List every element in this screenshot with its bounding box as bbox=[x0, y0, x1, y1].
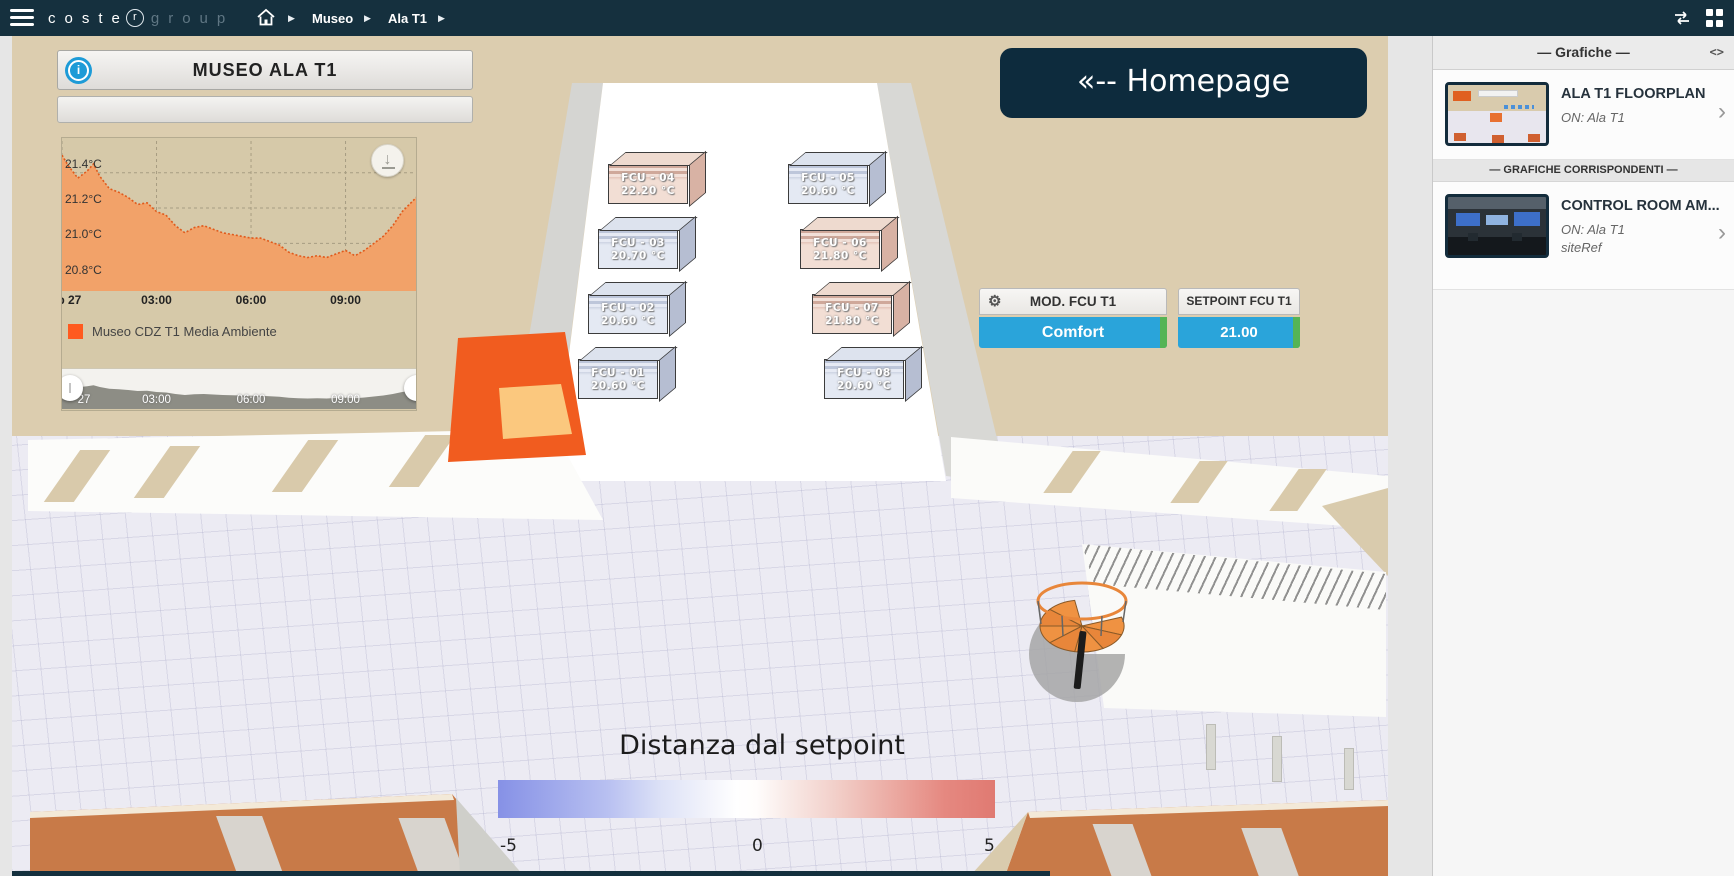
fcu-name: FCU - 04 bbox=[609, 172, 687, 185]
x-tick-label: 09:00 bbox=[330, 293, 361, 307]
chart-y-axis: 21.4°C21.2°C21.0°C20.8°C bbox=[65, 141, 125, 291]
sidebar-item-subtitle: ON: Ala T1 bbox=[1561, 110, 1625, 125]
distance-mid-label: 0 bbox=[752, 836, 763, 856]
logo-text-main: coste bbox=[48, 10, 129, 27]
chart-range-minimap[interactable]: 2703:0006:0009:00 bbox=[62, 368, 417, 408]
fcu-name: FCU - 03 bbox=[599, 237, 677, 250]
setpoint-fcu-widget: SETPOINT FCU T1 21.00 bbox=[1178, 288, 1300, 348]
distance-min-label: -5 bbox=[500, 836, 517, 856]
mod-fcu-widget: ⚙ MOD. FCU T1 Comfort bbox=[979, 288, 1167, 348]
fcu-unit-06[interactable]: FCU - 0621.80 °C bbox=[800, 229, 880, 269]
sidebar-item-ala-t1-floorplan[interactable]: ALA T1 FLOORPLAN ON: Ala T1 › bbox=[1433, 70, 1734, 160]
chevron-right-icon[interactable]: › bbox=[1718, 219, 1726, 247]
legend-series-name: Museo CDZ T1 Media Ambiente bbox=[92, 324, 277, 339]
scene-bottom-edge bbox=[12, 871, 1050, 876]
info-icon[interactable]: i bbox=[65, 57, 92, 84]
chart-x-axis: Sep 2703:0006:0009:00 bbox=[62, 293, 417, 309]
fcu-name: FCU - 02 bbox=[589, 302, 667, 315]
fcu-temp: 20.60 °C bbox=[789, 185, 867, 198]
fcu-temp: 20.60 °C bbox=[825, 380, 903, 393]
fcu-name: FCU - 05 bbox=[789, 172, 867, 185]
fcu-unit-07[interactable]: FCU - 0721.80 °C bbox=[812, 294, 892, 334]
distance-legend-title: Distanza dal setpoint bbox=[572, 730, 952, 761]
spiral-staircase bbox=[1007, 556, 1157, 731]
minimap-tick-label: 06:00 bbox=[237, 394, 266, 406]
home-icon[interactable] bbox=[256, 8, 276, 27]
breadcrumb-ala-t1[interactable]: Ala T1 bbox=[388, 0, 427, 36]
setpoint-fcu-label: SETPOINT FCU T1 bbox=[1186, 294, 1291, 308]
subtitle-bar bbox=[57, 96, 473, 123]
breadcrumb-separator-icon: ▶ bbox=[438, 13, 445, 24]
chart-download-icon[interactable]: ↓ bbox=[371, 144, 404, 177]
breadcrumb-separator-icon: ▶ bbox=[288, 13, 295, 24]
apps-grid-icon[interactable] bbox=[1706, 9, 1724, 27]
sidebar-divider: — GRAFICHE CORRISPONDENTI — bbox=[1433, 160, 1734, 182]
fcu-unit-03[interactable]: FCU - 0320.70 °C bbox=[598, 229, 678, 269]
fcu-temp: 20.60 °C bbox=[579, 380, 657, 393]
fcu-name: FCU - 08 bbox=[825, 367, 903, 380]
fcu-unit-01[interactable]: FCU - 0120.60 °C bbox=[578, 359, 658, 399]
walkway-leg bbox=[1344, 748, 1354, 790]
minimap-tick-label: 09:00 bbox=[331, 394, 360, 406]
logo-r-badge: r bbox=[126, 9, 144, 27]
logo-text-sub: group bbox=[151, 10, 234, 27]
fcu-temp: 20.60 °C bbox=[589, 315, 667, 328]
sidebar-item-title: ALA T1 FLOORPLAN bbox=[1561, 86, 1705, 102]
walkway-leg bbox=[1272, 736, 1282, 782]
x-tick-label: 03:00 bbox=[141, 293, 172, 307]
sidebar-item-subtitle: ON: Ala T1 bbox=[1561, 222, 1625, 237]
page-title-bar: i MUSEO ALA T1 bbox=[57, 50, 473, 90]
distance-gradient-bar bbox=[498, 780, 995, 818]
minimap-tick-label: 03:00 bbox=[142, 394, 171, 406]
fcu-unit-08[interactable]: FCU - 0820.60 °C bbox=[824, 359, 904, 399]
x-tick-label: Sep 27 bbox=[61, 293, 81, 307]
fcu-temp: 20.70 °C bbox=[599, 250, 677, 263]
sidebar-item-ref: siteRef bbox=[1561, 240, 1601, 255]
fcu-name: FCU - 07 bbox=[813, 302, 891, 315]
chevron-right-icon[interactable]: › bbox=[1718, 98, 1726, 126]
chart-legend: Museo CDZ T1 Media Ambiente bbox=[68, 324, 277, 339]
fcu-name: FCU - 01 bbox=[579, 367, 657, 380]
fcu-unit-04[interactable]: FCU - 0422.20 °C bbox=[608, 164, 688, 204]
fcu-temp: 21.80 °C bbox=[801, 250, 879, 263]
homepage-button[interactable]: «-- Homepage bbox=[1000, 48, 1367, 118]
sidebar-item-title: CONTROL ROOM AM... bbox=[1561, 198, 1720, 214]
y-tick-label: 21.0°C bbox=[65, 227, 102, 241]
setpoint-fcu-value[interactable]: 21.00 bbox=[1178, 317, 1300, 348]
floorplan-thumbnail bbox=[1445, 82, 1549, 146]
y-tick-label: 20.8°C bbox=[65, 263, 102, 277]
menu-icon[interactable] bbox=[10, 9, 34, 27]
legend-swatch bbox=[68, 324, 83, 339]
sidebar-header: — Grafiche — <> bbox=[1433, 36, 1734, 70]
breadcrumb-museo[interactable]: Museo bbox=[312, 0, 353, 36]
breadcrumb-separator-icon: ▶ bbox=[364, 13, 371, 24]
temperature-chart-widget: 21.4°C21.2°C21.0°C20.8°C Sep 2703:0006:0… bbox=[61, 137, 417, 411]
brand-logo: coste r group bbox=[48, 8, 234, 28]
page-title: MUSEO ALA T1 bbox=[193, 60, 338, 81]
fcu-unit-02[interactable]: FCU - 0220.60 °C bbox=[588, 294, 668, 334]
graphics-sidebar: — Grafiche — <> ALA T1 FLOORPLAN ON: Ala… bbox=[1432, 36, 1734, 876]
mod-fcu-label: MOD. FCU T1 bbox=[1030, 294, 1116, 309]
walkway-leg bbox=[1206, 724, 1216, 770]
control-room-thumbnail bbox=[1445, 194, 1549, 258]
top-bar: coste r group ▶ Museo ▶ Ala T1 ▶ bbox=[0, 0, 1734, 36]
distance-max-label: 5 bbox=[984, 836, 995, 856]
collapse-icon[interactable]: <> bbox=[1710, 36, 1724, 69]
gear-icon[interactable]: ⚙ bbox=[988, 289, 1001, 314]
status-strip bbox=[1160, 317, 1167, 348]
fcu-unit-05[interactable]: FCU - 0520.60 °C bbox=[788, 164, 868, 204]
status-strip bbox=[1293, 317, 1300, 348]
fcu-name: FCU - 06 bbox=[801, 237, 879, 250]
x-tick-label: 06:00 bbox=[236, 293, 267, 307]
fcu-temp: 21.80 °C bbox=[813, 315, 891, 328]
fcu-temp: 22.20 °C bbox=[609, 185, 687, 198]
y-tick-label: 21.4°C bbox=[65, 157, 102, 171]
y-tick-label: 21.2°C bbox=[65, 192, 102, 206]
app-root: coste r group ▶ Museo ▶ Ala T1 ▶ bbox=[0, 0, 1734, 876]
refresh-icon[interactable] bbox=[1672, 10, 1692, 26]
sidebar-item-control-room[interactable]: CONTROL ROOM AM... ON: Ala T1 siteRef › bbox=[1433, 182, 1734, 290]
mod-fcu-value[interactable]: Comfort bbox=[979, 317, 1167, 348]
